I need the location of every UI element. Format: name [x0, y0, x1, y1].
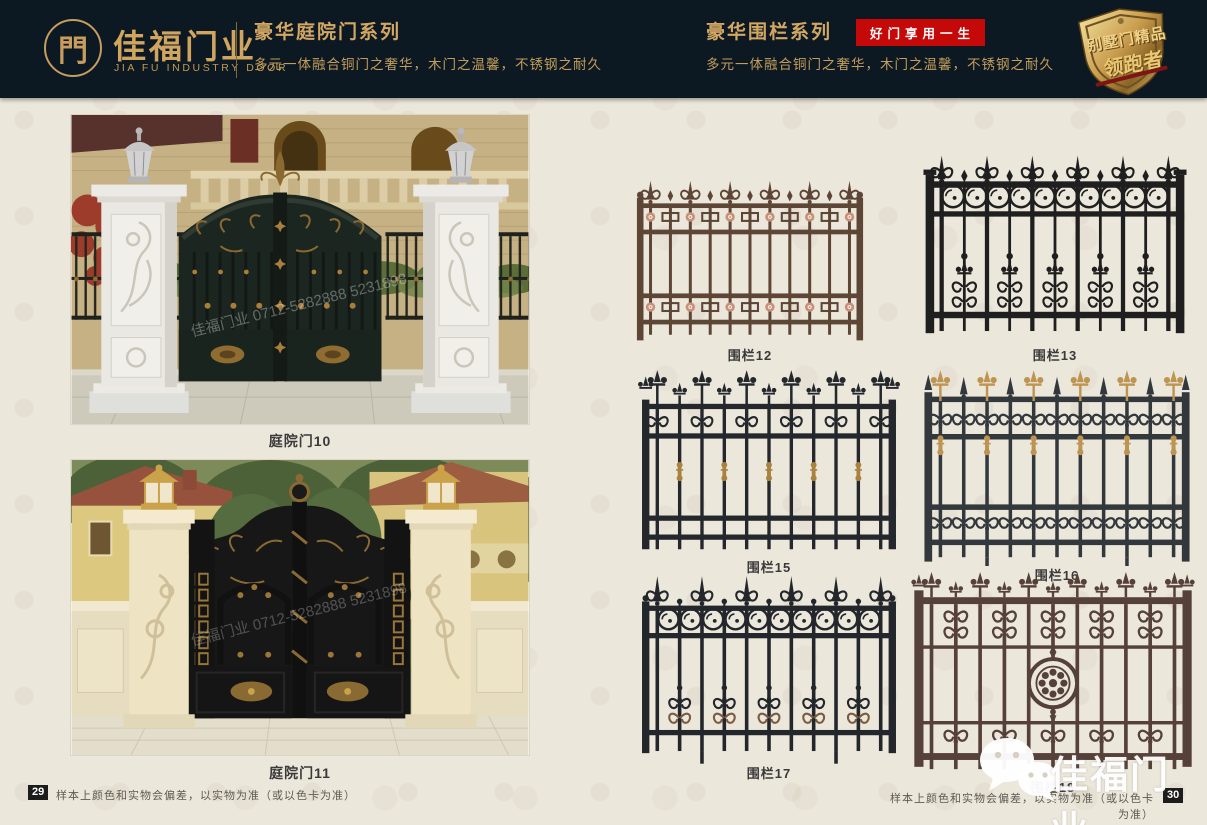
fence-image-17: [632, 574, 906, 764]
fence-label-12: 围栏12: [628, 346, 872, 366]
left-series-title: 豪华庭院门系列: [254, 17, 401, 44]
right-series-title: 豪华围栏系列: [706, 17, 832, 44]
fence-image-12: [628, 166, 872, 346]
header-divider: [236, 22, 237, 78]
gate-label-11: 庭院门11: [200, 763, 400, 783]
disclaimer-left: 样本上颜色和实物会偏差，以实物为准（或以色卡为准）: [56, 787, 356, 803]
header-bar: 門 佳福门业 JIA FU INDUSTRY DOOR 豪华庭院门系列 多元一体…: [0, 0, 1207, 98]
gate-photo-11-image: 佳福门业 0712-5282888 5231898: [71, 460, 529, 755]
fence-card-13: 围栏13: [916, 146, 1194, 366]
gold-shield-emblem: 别墅门精品 领跑者: [1057, 0, 1206, 105]
fence-image-15: [632, 368, 906, 558]
gate-photo-11: 佳福门业 0712-5282888 5231898: [70, 459, 530, 756]
left-series-subtitle: 多元一体融合铜门之奢华，木门之温馨，不锈钢之耐久: [254, 53, 602, 73]
corner-brand-watermark: 佳福门业: [1050, 744, 1207, 825]
fence-card-15: 围栏15: [632, 368, 906, 570]
catalog-page: 門 佳福门业 JIA FU INDUSTRY DOOR 豪华庭院门系列 多元一体…: [0, 0, 1207, 825]
right-series-subtitle: 多元一体融合铜门之奢华，木门之温馨，不锈钢之耐久: [706, 53, 1054, 73]
fence-label-17: 围栏17: [632, 764, 906, 784]
slogan-badge: 好门享用一生: [856, 19, 985, 46]
gate-label-10: 庭院门10: [200, 431, 400, 451]
fence-card-17: 围栏17: [632, 574, 906, 774]
gate-photo-10: 佳福门业 0712-5282888 5231898: [70, 114, 530, 425]
fence-label-13: 围栏13: [916, 346, 1194, 366]
logo-glyph: 門: [58, 26, 88, 70]
gate-photo-10-image: 佳福门业 0712-5282888 5231898: [71, 115, 529, 424]
fence-image-13: [916, 146, 1194, 346]
fence-image-16: [914, 368, 1200, 566]
brand-logo-icon: 門: [44, 19, 102, 77]
fence-card-12: 围栏12: [628, 166, 872, 366]
page-number-left: 29: [28, 785, 48, 800]
fence-card-16: 围栏16: [914, 368, 1200, 570]
